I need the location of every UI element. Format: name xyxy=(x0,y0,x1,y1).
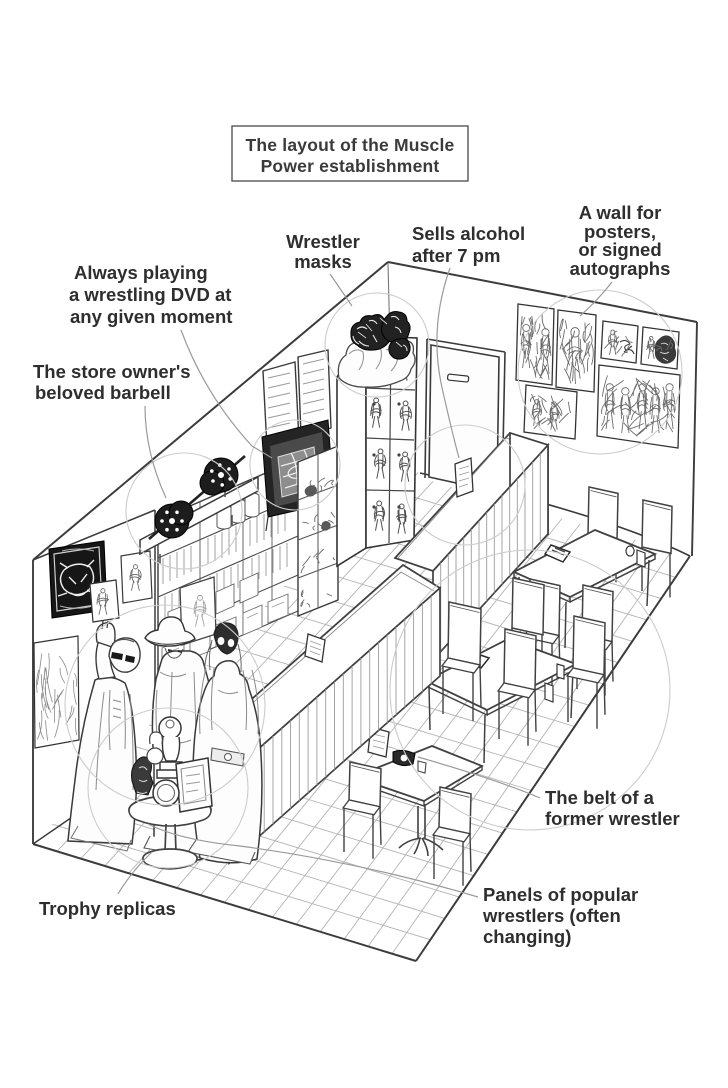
svg-text:masks: masks xyxy=(294,251,352,272)
svg-text:A wall for: A wall for xyxy=(579,202,662,223)
svg-text:former wrestler: former wrestler xyxy=(545,808,680,829)
svg-text:Sells alcohol: Sells alcohol xyxy=(412,223,525,244)
svg-text:Trophy replicas: Trophy replicas xyxy=(39,898,176,919)
svg-text:The layout of the Muscle: The layout of the Muscle xyxy=(246,135,455,155)
svg-text:wrestlers (often: wrestlers (often xyxy=(482,905,621,926)
svg-text:Power establishment: Power establishment xyxy=(261,156,440,176)
svg-text:The store owner's: The store owner's xyxy=(33,361,191,382)
svg-text:after 7 pm: after 7 pm xyxy=(412,245,500,266)
svg-text:changing): changing) xyxy=(483,926,571,947)
svg-text:The belt of a: The belt of a xyxy=(545,787,655,808)
svg-text:autographs: autographs xyxy=(570,258,671,279)
svg-text:any given moment: any given moment xyxy=(70,306,232,327)
svg-text:or signed: or signed xyxy=(578,239,661,260)
svg-text:a wrestling DVD at: a wrestling DVD at xyxy=(69,284,231,305)
svg-text:beloved barbell: beloved barbell xyxy=(35,382,171,403)
svg-text:Wrestler: Wrestler xyxy=(286,231,360,252)
svg-text:Always playing: Always playing xyxy=(74,262,208,283)
svg-text:Panels of popular: Panels of popular xyxy=(483,884,638,905)
